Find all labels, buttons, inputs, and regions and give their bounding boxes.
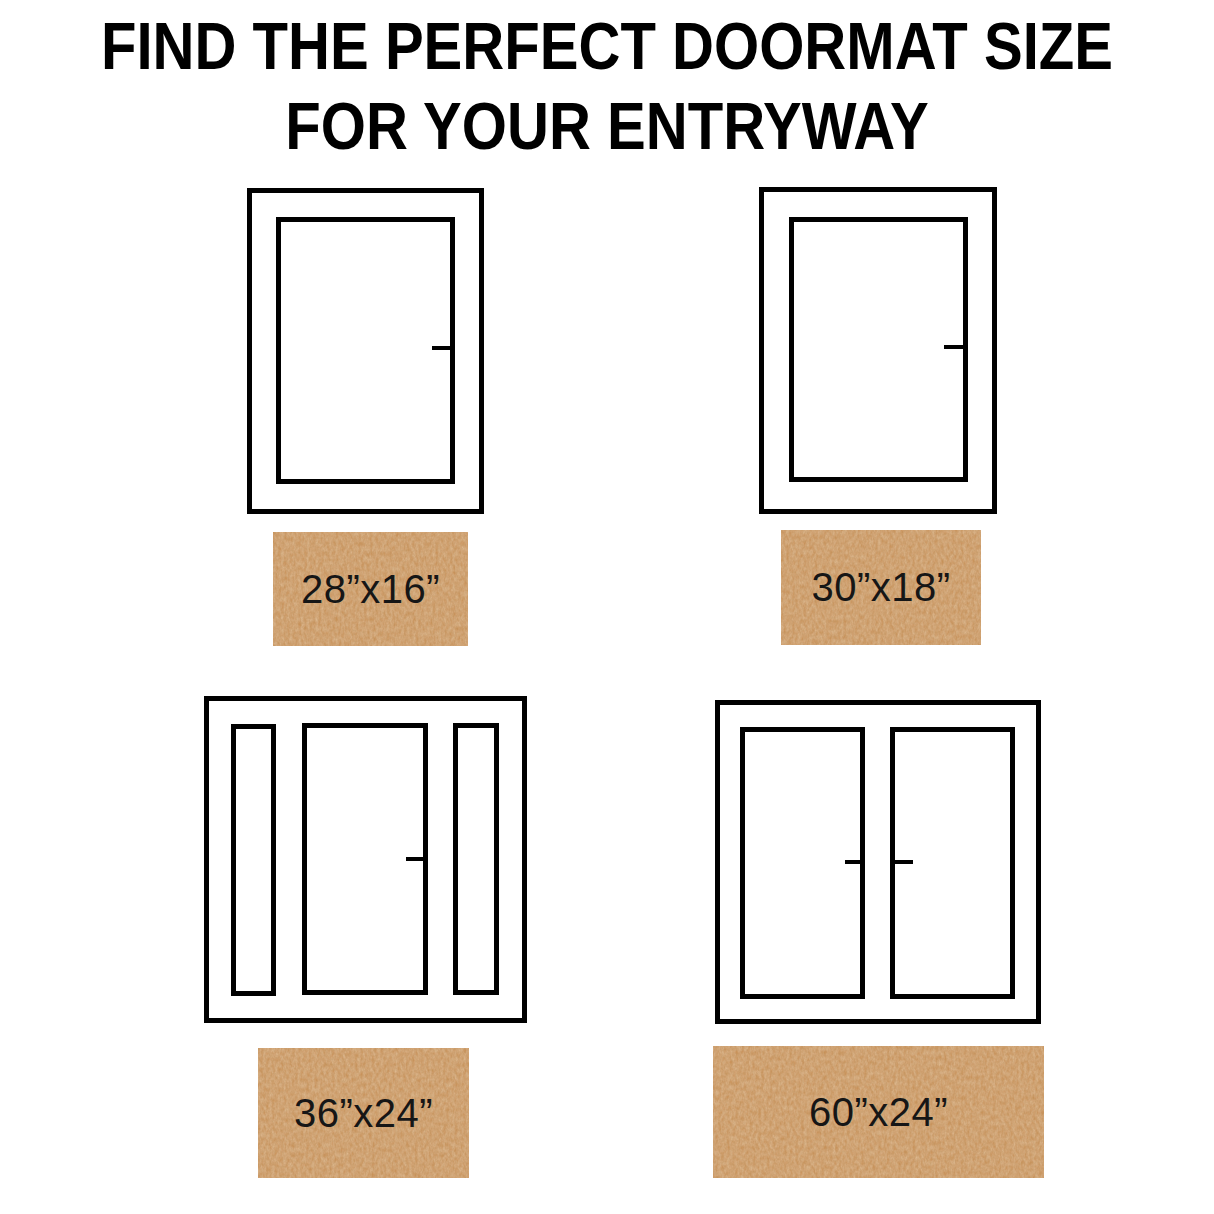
door-handle-left — [845, 860, 865, 864]
sidelight-door-diagram — [204, 696, 527, 1023]
doormat-size-guide: FIND THE PERFECT DOORMAT SIZE FOR YOUR E… — [0, 0, 1214, 1214]
doormat-size-label: 28”x16” — [273, 532, 468, 646]
doormat-size-label: 60”x24” — [713, 1046, 1044, 1178]
door-handle — [432, 346, 455, 350]
page-title-line1: FIND THE PERFECT DOORMAT SIZE — [73, 6, 1141, 86]
single-door-diagram-1 — [247, 188, 484, 514]
single-door-diagram-2 — [759, 187, 997, 514]
door-handle — [406, 857, 428, 861]
doormat-36x24: 36”x24” — [258, 1048, 469, 1178]
doormat-size-label: 30”x18” — [781, 530, 981, 645]
door-handle-right — [890, 860, 913, 864]
doormat-size-label: 36”x24” — [258, 1048, 469, 1178]
doormat-30x18: 30”x18” — [781, 530, 981, 645]
page-title-line2: FOR YOUR ENTRYWAY — [73, 86, 1141, 166]
page-title: FIND THE PERFECT DOORMAT SIZE FOR YOUR E… — [0, 6, 1214, 166]
sidelight-right — [453, 723, 499, 995]
door-handle — [944, 345, 968, 349]
double-door-diagram — [715, 700, 1041, 1024]
sidelight-left — [231, 724, 276, 996]
door-panel — [789, 217, 968, 482]
doormat-28x16: 28”x16” — [273, 532, 468, 646]
door-panel — [276, 217, 455, 484]
doormat-60x24: 60”x24” — [713, 1046, 1044, 1178]
